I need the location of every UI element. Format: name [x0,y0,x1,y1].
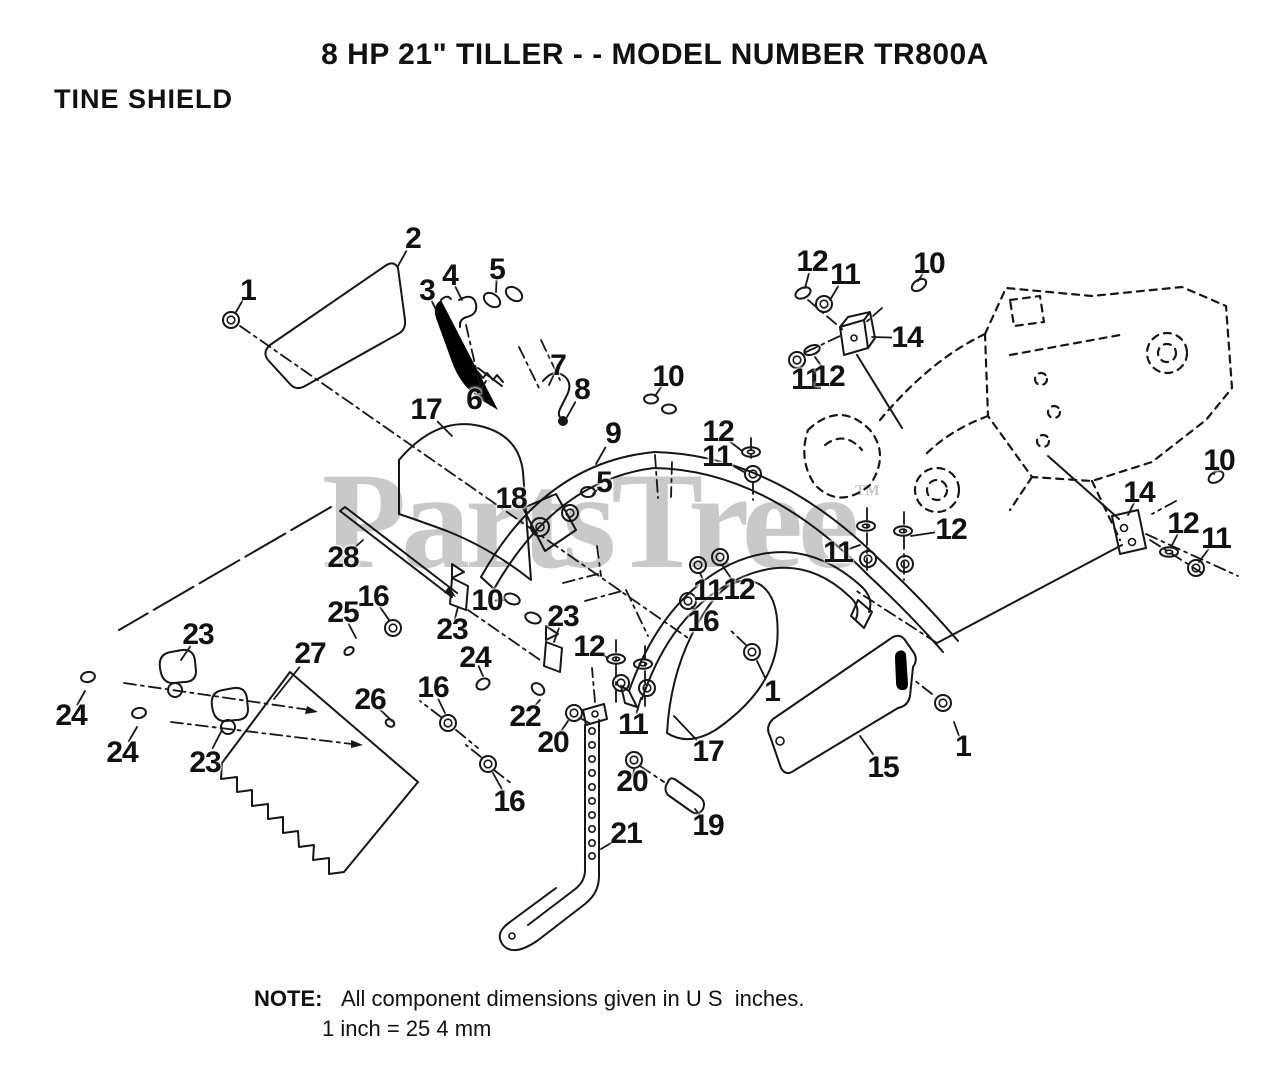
part-callout-23: 23 [182,618,213,652]
part-callout-22: 22 [509,700,540,734]
part-callout-20: 20 [537,726,568,760]
part-callout-24: 24 [55,699,86,733]
part-callout-23: 23 [189,746,220,780]
part-callout-12: 12 [796,245,827,279]
part-callout-7: 7 [550,349,566,383]
part-callout-6: 6 [466,383,482,417]
part-callout-9: 9 [605,417,621,451]
exploded-parts-drawing [0,0,1280,1086]
part-callout-11: 11 [830,258,860,292]
part-callout-3: 3 [419,274,435,308]
part-callout-25: 25 [327,596,358,630]
washer-nut-stack-right [857,508,913,580]
part-callout-16: 16 [417,671,448,705]
part-callout-16: 16 [687,605,718,639]
part-callout-12: 12 [1167,507,1198,541]
part-callout-28: 28 [327,541,358,575]
part-callout-12: 12 [573,630,604,664]
serrated-flap-27 [221,672,418,874]
callout-leader-lines [77,251,1216,849]
part-callout-4: 4 [442,259,458,293]
part-callout-11: 11 [618,708,648,742]
part-callout-11: 11 [693,574,723,608]
part-callout-14: 14 [1123,476,1154,510]
part-callout-12: 12 [723,573,754,607]
part-callout-10: 10 [652,360,683,394]
part-callout-10: 10 [913,247,944,281]
part-callout-5: 5 [489,253,505,287]
part-callout-14: 14 [891,321,922,355]
parts-diagram-page: { "page": { "title": "8 HP 21\" TILLER -… [0,0,1280,1086]
part-callout-11: 11 [702,440,732,474]
part-callout-15: 15 [867,751,898,785]
part-callout-2: 2 [405,222,421,256]
part-callout-21: 21 [610,817,641,851]
part-callout-17: 17 [410,393,441,427]
bracket-group-right [855,456,1238,722]
part-callout-19: 19 [692,809,723,843]
part-callout-16: 16 [493,785,524,819]
part-callout-17: 17 [692,735,723,769]
side-shield-left [265,263,405,388]
part-callout-24: 24 [106,736,137,770]
part-callout-16: 16 [357,580,388,614]
part-callout-10: 10 [471,584,502,618]
part-callout-24: 24 [459,641,490,675]
part-callout-1: 1 [955,730,971,764]
part-callout-1: 1 [764,675,780,709]
part-callout-11: 11 [1201,522,1231,556]
part-callout-23: 23 [547,600,578,634]
part-callout-12: 12 [813,360,844,394]
part-callout-11: 11 [823,536,853,570]
part-callout-8: 8 [574,373,590,407]
part-callout-5: 5 [596,466,612,500]
part-callout-27: 27 [294,637,325,671]
part-callout-18: 18 [495,482,526,516]
tiller-body-outline [804,287,1232,540]
part-callout-10: 10 [1203,444,1234,478]
center-bottom-hardware [343,564,704,813]
part-callout-20: 20 [616,765,647,799]
part-callout-12: 12 [935,513,966,547]
part-callout-1: 1 [240,274,256,308]
part-callout-26: 26 [354,683,385,717]
